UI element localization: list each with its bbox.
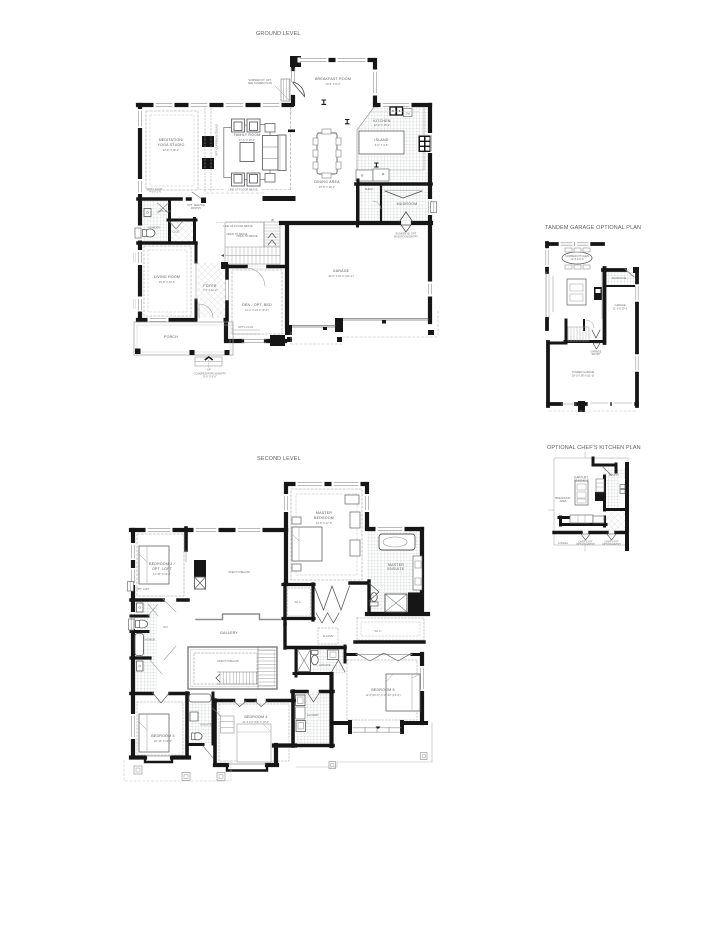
svg-text:SECOND LEVEL: SECOND LEVEL [257,456,301,462]
svg-text:OPT. LOFT: OPT. LOFT [152,567,173,571]
svg-text:UP: UP [271,218,275,222]
svg-text:CLOS.: CLOS. [172,230,180,234]
svg-text:SHOWER: SHOWER [143,638,155,642]
svg-text:YOGA STUDIO: YOGA STUDIO [158,143,185,147]
svg-text:MUDROOM: MUDROOM [612,276,626,280]
svg-text:FAMILY ROOM: FAMILY ROOM [234,133,261,137]
svg-text:W.I.C.: W.I.C. [374,629,381,633]
svg-text:MUDROOM: MUDROOM [397,202,418,206]
svg-text:OPTION ENTRY: OPTION ENTRY [576,542,596,546]
svg-text:DEN / OPT. BED: DEN / OPT. BED [242,303,272,307]
svg-text:OPT. ELEV.: OPT. ELEV. [158,209,172,213]
svg-text:10'-10" X 12'-4": 10'-10" X 12'-4" [154,739,172,743]
svg-text:4'-0 X 2'-0: 4'-0 X 2'-0 [149,190,161,194]
svg-text:OPT. LOFT: OPT. LOFT [136,587,150,591]
svg-text:OPT'L CLOS.: OPT'L CLOS. [238,325,254,329]
svg-text:MUD ROOM ENTRY: MUD ROOM ENTRY [394,234,418,238]
svg-text:12'-6 X 9'-8: 12'-6 X 9'-8 [570,257,584,261]
svg-text:ENSUITE: ENSUITE [319,663,331,667]
svg-text:9'-0" X 4'-6": 9'-0" X 4'-6" [375,143,389,147]
svg-text:11'-4" X 13'-0" (9'-4"): 11'-4" X 13'-0" (9'-4") [245,308,269,312]
svg-text:BREAKFAST ROOM: BREAKFAST ROOM [315,77,351,81]
svg-text:OPTIONAL CHEF'S KITCHEN PLAN: OPTIONAL CHEF'S KITCHEN PLAN [547,445,641,451]
svg-text:9'-0" X 5'-0": 9'-0" X 5'-0" [203,374,217,378]
svg-text:ENTRY: ENTRY [592,352,601,356]
svg-text:DW: DW [406,112,411,116]
svg-text:OPT. COFFERED CEILING: OPT. COFFERED CEILING [215,124,219,156]
svg-text:LIVING ROOM: LIVING ROOM [154,275,180,279]
svg-text:SEE TANDEM PLAN: SEE TANDEM PLAN [248,81,272,85]
svg-text:PORCH: PORCH [164,335,178,339]
svg-text:TANDEM GARAGE OPTIONAL PLAN: TANDEM GARAGE OPTIONAL PLAN [545,225,641,231]
svg-text:20'-0 X 38'-0 (11'-0): 20'-0 X 38'-0 (11'-0) [572,374,595,378]
svg-text:7'-4" X 11'-2": 7'-4" X 11'-2" [203,288,218,292]
svg-text:LOGGIA: LOGGIA [558,541,568,545]
svg-text:MEDITATION/: MEDITATION/ [159,138,184,142]
svg-text:ALCOVE: ALCOVE [323,634,334,638]
svg-text:12'-10" X 14'-0": 12'-10" X 14'-0" [153,572,171,576]
svg-text:11'-0 X 20'-6: 11'-0 X 20'-6 [613,307,628,311]
svg-text:OPTION ENTRY: OPTION ENTRY [602,542,622,546]
svg-text:BEDROOM 5: BEDROOM 5 [371,688,394,692]
svg-text:SHELF: SHELF [365,187,374,191]
svg-text:BEDROOM 2 /: BEDROOM 2 / [149,562,175,566]
svg-text:30'-0" X 20'-0" (21'-4"): 30'-0" X 20'-0" (21'-4") [328,274,354,278]
svg-text:POWDER: POWDER [148,226,160,230]
svg-text:OPEN TO BELOW: OPEN TO BELOW [228,570,250,574]
svg-text:12'-6" X 19'-2": 12'-6" X 19'-2" [163,148,179,152]
svg-text:GARAGE: GARAGE [614,303,625,307]
svg-text:DINING AREA: DINING AREA [314,180,340,184]
svg-text:LAUNDRY: LAUNDRY [307,713,320,717]
svg-text:LINE OF FLOOR ABOVE: LINE OF FLOOR ABOVE [223,224,253,228]
svg-text:ENSUITE: ENSUITE [200,723,212,727]
svg-text:GARAGE: GARAGE [333,269,350,273]
svg-text:BEDROOM 4: BEDROOM 4 [244,715,267,719]
svg-text:12'-0" X 15'-4": 12'-0" X 15'-4" [374,123,390,127]
svg-text:MASTER: MASTER [316,511,332,515]
svg-text:GROUND LEVEL: GROUND LEVEL [256,31,301,37]
svg-text:PANTRY: PANTRY [609,473,620,477]
svg-text:15'-8" X 13'-6": 15'-8" X 13'-6" [159,280,175,284]
svg-text:TANDEM GARAGE: TANDEM GARAGE [572,370,595,374]
svg-text:OPEN TO ABOVE: OPEN TO ABOVE [236,234,257,238]
svg-text:BEDROOM 3: BEDROOM 3 [151,734,174,738]
svg-text:W.C.: W.C. [163,625,169,629]
svg-text:12'-0"(16'-6") X 15'-10" (13'-: 12'-0"(16'-6") X 15'-10" (13'-4") [365,693,400,697]
svg-text:PANTRY: PANTRY [191,206,202,210]
svg-text:ENSUITE: ENSUITE [388,567,405,571]
svg-text:UP: UP [207,368,211,372]
svg-text:AREA: AREA [559,499,566,503]
svg-text:KITCHEN: KITCHEN [373,119,390,123]
svg-text:OPEN TO BELOW: OPEN TO BELOW [217,659,239,663]
svg-text:FOYER: FOYER [203,284,217,288]
svg-text:11'-4 1/4" (15') X 13'-0": 11'-4 1/4" (15') X 13'-0" [243,720,269,724]
svg-text:GALLERY: GALLERY [220,631,238,635]
svg-text:ISLAND: ISLAND [374,138,388,142]
svg-text:10'-0" X 9'-2": 10'-0" X 9'-2" [326,82,341,86]
svg-text:BEDROOM: BEDROOM [314,516,334,520]
svg-text:W.I.C.: W.I.C. [294,600,301,604]
svg-text:LINE OF FLOOR ABOVE: LINE OF FLOOR ABOVE [228,188,258,192]
svg-text:13'-2 X 17'-0: 13'-2 X 17'-0 [574,478,589,482]
svg-text:17'-6" X 19'-2": 17'-6" X 19'-2" [239,138,255,142]
svg-text:15'-8" X 19'-2": 15'-8" X 19'-2" [319,185,335,189]
svg-text:14'-8" X 17'-0": 14'-8" X 17'-0" [316,521,332,525]
